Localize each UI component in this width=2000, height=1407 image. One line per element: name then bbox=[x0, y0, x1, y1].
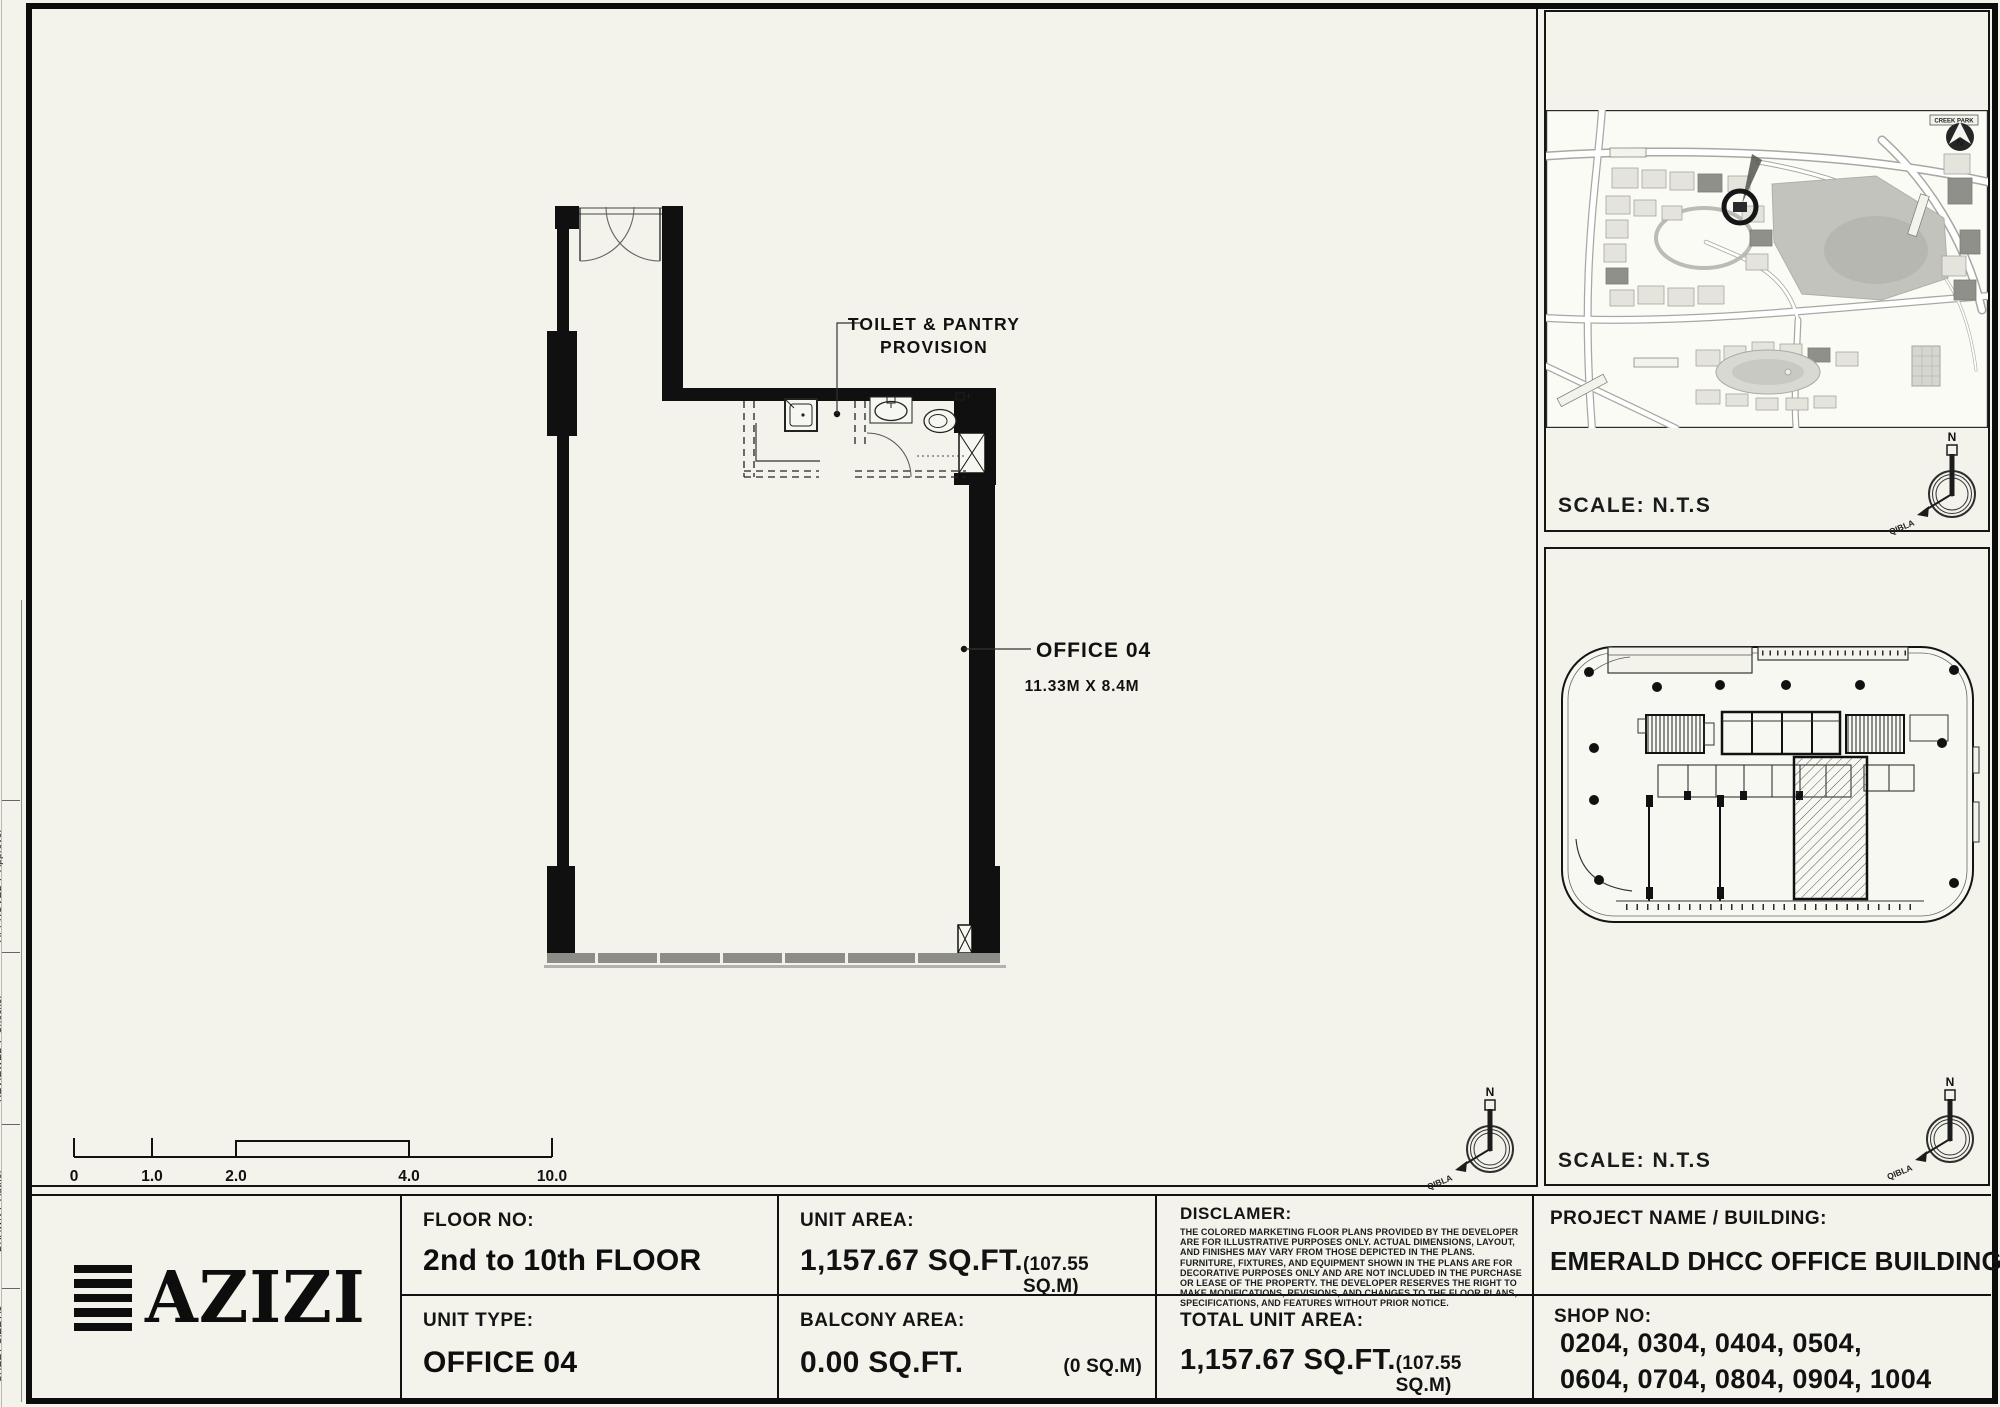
balcony-area-metric: (0 SQ.M) bbox=[1063, 1356, 1142, 1378]
balcony-area-row: 0.00 SQ.FT. (0 SQ.M) bbox=[800, 1346, 1142, 1380]
compass-north-label: N bbox=[1946, 1075, 1955, 1089]
compass-qibla-label: QIBLA bbox=[1425, 1173, 1453, 1192]
unit-area-value: 1,157.67 SQ.FT. bbox=[800, 1244, 1023, 1278]
brand-wordmark: AZIZI bbox=[145, 1267, 366, 1330]
approved-note: APPROVED : Approver bbox=[0, 829, 5, 942]
disclaimer-text: THE COLORED MARKETING FLOOR PLANS PROVID… bbox=[1180, 1227, 1532, 1309]
kitchen-sink-icon bbox=[785, 399, 817, 431]
total-area-value: 1,157.67 SQ.FT. bbox=[1180, 1344, 1396, 1377]
location-map: CREEK PARK N bbox=[1546, 110, 1988, 428]
unit-type-label: UNIT TYPE: bbox=[423, 1310, 534, 1332]
approved-label: APPROVED : bbox=[0, 878, 4, 942]
project-name-label: PROJECT NAME / BUILDING: bbox=[1550, 1208, 1827, 1230]
scale-tick-4: 4.0 bbox=[398, 1168, 420, 1185]
approved-value: Approver bbox=[0, 829, 4, 872]
titleblock-divider bbox=[400, 1196, 402, 1398]
sheet-size-note: SHEET SIZE A3 bbox=[0, 1305, 5, 1382]
compass-qibla-label: QIBLA bbox=[1887, 518, 1915, 537]
floorplan-panel: TOILET & PANTRY PROVISION OFFICE 04 11.3… bbox=[32, 9, 1538, 1187]
brand-logo: AZIZI bbox=[32, 1196, 400, 1400]
compass-north-label: N bbox=[1948, 430, 1957, 444]
drawn-value: Author bbox=[0, 1170, 4, 1201]
floor-no-value: 2nd to 10th FLOOR bbox=[423, 1244, 701, 1278]
margin-tick bbox=[2, 1124, 20, 1125]
margin-tick bbox=[2, 1288, 20, 1289]
lift-core bbox=[1722, 712, 1840, 754]
washbasin-icon bbox=[870, 397, 912, 423]
reviewed-label: REVIEWED : bbox=[0, 1040, 4, 1102]
reviewed-note: REVIEWED : Checker bbox=[0, 995, 5, 1102]
drawn-note: DRAWN : Author bbox=[0, 1170, 5, 1253]
margin-tick bbox=[2, 800, 20, 801]
title-block: AZIZI FLOOR NO: 2nd to 10th FLOOR UNIT T… bbox=[32, 1194, 1991, 1398]
stair-core bbox=[1646, 715, 1704, 753]
compass-qibla-label: QIBLA bbox=[1885, 1163, 1913, 1182]
margin-tick bbox=[2, 952, 20, 953]
total-area-metric: (107.55 SQ.M) bbox=[1396, 1353, 1520, 1397]
total-area-label: TOTAL UNIT AREA: bbox=[1180, 1310, 1364, 1332]
titleblock-divider bbox=[777, 1196, 779, 1398]
scale-tick-0: 0 bbox=[70, 1168, 79, 1185]
shop-no-label: SHOP NO: bbox=[1554, 1306, 1652, 1328]
svg-text:N: N bbox=[1956, 138, 1963, 149]
map-scale-label: SCALE: N.T.S bbox=[1558, 494, 1711, 518]
total-area-row: 1,157.67 SQ.FT. (107.55 SQ.M) bbox=[1180, 1344, 1520, 1397]
scale-bar: 0 1.0 2.0 4.0 10.0 bbox=[70, 1138, 567, 1185]
compass-icon: N QIBLA bbox=[1415, 1085, 1565, 1197]
project-name-value: EMERALD DHCC OFFICE BUILDING bbox=[1550, 1246, 2000, 1277]
reviewed-value: Checker bbox=[0, 995, 4, 1034]
floor-no-label: FLOOR NO: bbox=[423, 1210, 534, 1232]
azizi-bars-icon bbox=[74, 1265, 132, 1332]
scale-tick-10: 10.0 bbox=[537, 1168, 567, 1185]
drawn-label: DRAWN : bbox=[0, 1207, 4, 1252]
highlighted-unit bbox=[1794, 757, 1867, 899]
disclaimer-label: DISCLAMER: bbox=[1180, 1204, 1292, 1224]
window-strip bbox=[544, 953, 1006, 968]
scale-tick-2: 2.0 bbox=[225, 1168, 247, 1185]
sheet-size-label: SHEET SIZE A3 bbox=[0, 1305, 4, 1382]
unit-type-value: OFFICE 04 bbox=[423, 1346, 577, 1380]
unit-area-row: 1,157.67 SQ.FT. (107.55 SQ.M) bbox=[800, 1244, 1142, 1298]
provision-leader bbox=[834, 323, 861, 417]
room-dims: 11.33M X 8.4M bbox=[1025, 678, 1140, 695]
unit-area-metric: (107.55 SQ.M) bbox=[1023, 1254, 1142, 1298]
creek-park-label: CREEK PARK bbox=[1930, 115, 1978, 125]
room-label: OFFICE 04 bbox=[1036, 639, 1151, 662]
balcony-area-value: 0.00 SQ.FT. bbox=[800, 1346, 963, 1380]
titleblock-divider bbox=[1155, 1196, 1157, 1398]
stair-core bbox=[1846, 715, 1904, 753]
shop-no-line2: 0604, 0704, 0804, 0904, 1004 bbox=[1560, 1364, 1932, 1395]
provision-label-line1: TOILET & PANTRY bbox=[848, 314, 1020, 334]
unit-area-label: UNIT AREA: bbox=[800, 1210, 914, 1232]
compass-north-label: N bbox=[1486, 1085, 1495, 1099]
floorplan-drawing: TOILET & PANTRY PROVISION OFFICE 04 11.3… bbox=[32, 9, 1536, 1185]
titleblock-divider bbox=[1532, 1196, 1534, 1398]
scale-tick-1: 1.0 bbox=[141, 1168, 163, 1185]
keyplan-scale-label: SCALE: N.T.S bbox=[1558, 1149, 1711, 1173]
svg-text:CREEK PARK: CREEK PARK bbox=[1934, 119, 1974, 125]
track-oval bbox=[1716, 350, 1820, 394]
compass-icon: N QIBLA bbox=[1875, 1075, 2000, 1187]
provision-label-line2: PROVISION bbox=[880, 337, 988, 357]
balcony-area-label: BALCONY AREA: bbox=[800, 1310, 965, 1332]
shop-no-line1: 0204, 0304, 0404, 0504, bbox=[1560, 1328, 1862, 1359]
entrance-door bbox=[579, 207, 662, 261]
margin-strip-divider bbox=[21, 600, 22, 1402]
compass-icon: N QIBLA bbox=[1877, 430, 2000, 542]
